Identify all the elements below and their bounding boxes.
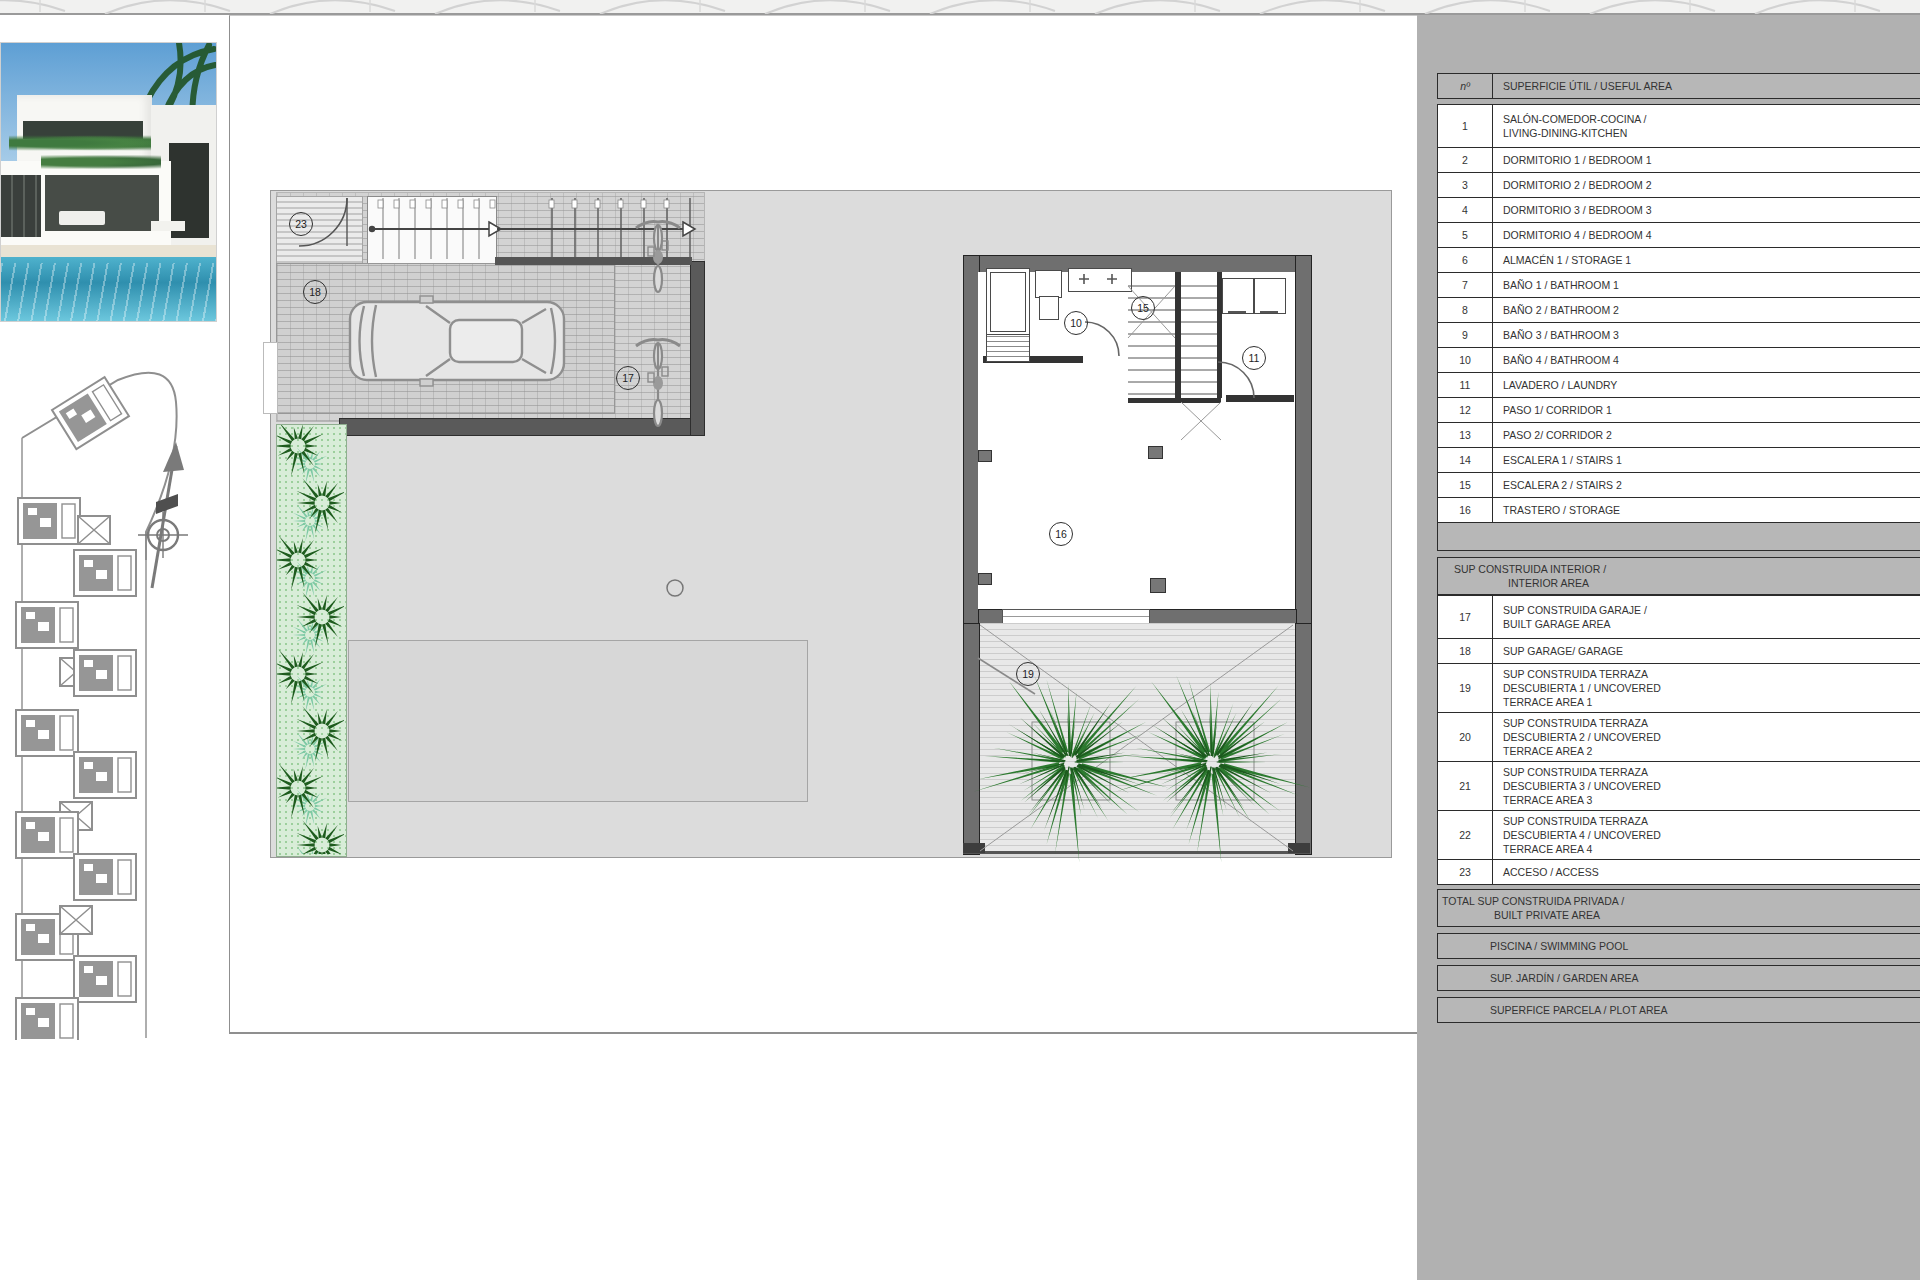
- row-name: SUP CONSTRUIDA TERRAZADESCUBIERTA 3 / UN…: [1493, 762, 1920, 810]
- villa-footprint: [16, 998, 78, 1040]
- villa-footprint: [16, 602, 78, 648]
- garage-side-gutter: [263, 342, 278, 414]
- row-number: 17: [1438, 596, 1493, 638]
- areas-table-block: 17 SUP CONSTRUIDA GARAJE /BUILT GARAGE A…: [1437, 595, 1920, 885]
- table-row: 19 SUP CONSTRUIDA TERRAZADESCUBIERTA 1 /…: [1438, 663, 1920, 712]
- photo-planter: [41, 155, 161, 169]
- access-ramp-hatch: [276, 196, 363, 264]
- stair-bottom-wall: [1128, 398, 1221, 403]
- table-header-row: nº SUPERFICIE ÚTIL / USEFUL AREA: [1437, 73, 1920, 99]
- room-label: 11: [1242, 346, 1266, 370]
- table-row: 23 ACCESO / ACCESS: [1438, 859, 1920, 884]
- table-row: 9 BAÑO 3 / BATHROOM 3: [1438, 322, 1920, 347]
- row-name: LAVADERO / LAUNDRY: [1493, 373, 1920, 397]
- row-number: 15: [1438, 473, 1493, 497]
- row-name: SALÓN-COMEDOR-COCINA /LIVING-DINING-KITC…: [1493, 105, 1920, 147]
- total-built-row: TOTAL SUP CONSTRUIDA PRIVADA /BUILT PRIV…: [1437, 889, 1920, 927]
- table-row: 12 PASO 1/ CORRIDOR 1: [1438, 397, 1920, 422]
- table-row: 14 ESCALERA 1 / STAIRS 1: [1438, 447, 1920, 472]
- row-number: 10: [1438, 348, 1493, 372]
- row-number: 1: [1438, 105, 1493, 147]
- shower-inner: [990, 272, 1026, 332]
- table-spacer-band: [1437, 523, 1920, 551]
- row-number: 21: [1438, 762, 1493, 810]
- terrace-corner-nub: [1288, 843, 1310, 853]
- row-number: 23: [1438, 860, 1493, 884]
- room-label: 19: [1016, 662, 1040, 686]
- row-name: DORMITORIO 3 / BEDROOM 3: [1493, 198, 1920, 222]
- table-row: 11 LAVADERO / LAUNDRY: [1438, 372, 1920, 397]
- row-number: 18: [1438, 639, 1493, 663]
- table-row: 7 BAÑO 1 / BATHROOM 1: [1438, 272, 1920, 297]
- pool-row: PISCINA / SWIMMING POOL: [1437, 933, 1920, 959]
- row-name: ESCALERA 1 / STAIRS 1: [1493, 448, 1920, 472]
- legend-panel: nº SUPERFICIE ÚTIL / USEFUL AREA 1 SALÓN…: [1417, 0, 1920, 1280]
- vanity-counter: [1068, 268, 1132, 292]
- stair-mid-wall: [1175, 272, 1181, 402]
- villa-footprint: [74, 550, 136, 596]
- row-name: BAÑO 1 / BATHROOM 1: [1493, 273, 1920, 297]
- table-header-num: nº: [1438, 74, 1493, 98]
- villa-photo: [0, 42, 217, 322]
- villa-footprint: [74, 956, 136, 1002]
- site-boundary: [22, 373, 177, 560]
- row-number: 9: [1438, 323, 1493, 347]
- villa-footprint: [74, 752, 136, 798]
- toilet-bowl: [1039, 296, 1059, 320]
- sheet-top-strip: [0, 0, 1920, 15]
- plot-row: SUPERFICE PARCELA / PLOT AREA: [1437, 997, 1920, 1023]
- row-name: BAÑO 3 / BATHROOM 3: [1493, 323, 1920, 347]
- row-number: 22: [1438, 811, 1493, 859]
- table-row: 3 DORMITORIO 2 / BEDROOM 2: [1438, 172, 1920, 197]
- column-marker: [1150, 578, 1166, 593]
- row-number: 3: [1438, 173, 1493, 197]
- row-name: PASO 2/ CORRIDOR 2: [1493, 423, 1920, 447]
- row-number: 11: [1438, 373, 1493, 397]
- pool-footprint: [78, 516, 110, 544]
- table-row: 2 DORMITORIO 1 / BEDROOM 1: [1438, 147, 1920, 172]
- room-label: 16: [1049, 522, 1073, 546]
- stair-run-outdoor: [367, 196, 497, 264]
- photo-terrace-plants: [9, 135, 159, 151]
- toilet-cistern: [1035, 270, 1062, 298]
- row-number: 7: [1438, 273, 1493, 297]
- sunken-patio: [348, 640, 808, 802]
- row-name: BAÑO 2 / BATHROOM 2: [1493, 298, 1920, 322]
- room-label: 17: [616, 366, 640, 390]
- villa-footprint: [52, 377, 129, 449]
- table-row: 4 DORMITORIO 3 / BEDROOM 3: [1438, 197, 1920, 222]
- terrace-edge: [963, 851, 1310, 854]
- column-marker: [1148, 446, 1163, 459]
- garage-slab: [276, 263, 615, 414]
- north-arrow-icon: [138, 442, 188, 588]
- terrace-wall-left: [963, 623, 980, 855]
- pool-footprint: [60, 658, 92, 686]
- row-number: 4: [1438, 198, 1493, 222]
- villa-footprint: [74, 854, 136, 900]
- built-area-section-header: SUP CONSTRUIDA INTERIOR /INTERIOR AREA: [1437, 557, 1920, 595]
- room-label: 23: [289, 212, 313, 236]
- row-name: SUP CONSTRUIDA TERRAZADESCUBIERTA 4 / UN…: [1493, 811, 1920, 859]
- table-row: 5 DORMITORIO 4 / BEDROOM 4: [1438, 222, 1920, 247]
- table-row: 6 ALMACÉN 1 / STORAGE 1: [1438, 247, 1920, 272]
- row-number: 16: [1438, 498, 1493, 522]
- table-header-title: SUPERFICIE ÚTIL / USEFUL AREA: [1493, 77, 1920, 95]
- table-row: 21 SUP CONSTRUIDA TERRAZADESCUBIERTA 3 /…: [1438, 761, 1920, 810]
- laundry-partition-wall: [1226, 395, 1294, 402]
- site-plan: [0, 350, 228, 1040]
- garden-row: SUP. JARDÍN / GARDEN AREA: [1437, 965, 1920, 991]
- hedge-strip: [276, 424, 347, 857]
- row-number: 20: [1438, 713, 1493, 761]
- row-name: SUP CONSTRUIDA TERRAZADESCUBIERTA 1 / UN…: [1493, 664, 1920, 712]
- row-name: SUP GARAGE/ GARAGE: [1493, 639, 1920, 663]
- row-number: 6: [1438, 248, 1493, 272]
- row-number: 2: [1438, 148, 1493, 172]
- table-row: 10 BAÑO 4 / BATHROOM 4: [1438, 347, 1920, 372]
- row-name: TRASTERO / STORAGE: [1493, 498, 1920, 522]
- row-number: 13: [1438, 423, 1493, 447]
- dryer-unit: [1254, 278, 1286, 314]
- table-row: 13 PASO 2/ CORRIDOR 2: [1438, 422, 1920, 447]
- row-number: 5: [1438, 223, 1493, 247]
- photo-glass-wall: [1, 175, 41, 237]
- retaining-wall-horizontal: [339, 418, 705, 436]
- villa-footprint: [16, 710, 78, 756]
- photo-sunbed: [151, 221, 185, 231]
- row-name: DORMITORIO 4 / BEDROOM 4: [1493, 223, 1920, 247]
- row-number: 8: [1438, 298, 1493, 322]
- area-table: nº SUPERFICIE ÚTIL / USEFUL AREA 1 SALÓN…: [1437, 73, 1920, 1023]
- building-wall-right: [1295, 255, 1312, 625]
- row-name: SUP CONSTRUIDA GARAJE /BUILT GARAGE AREA: [1493, 596, 1920, 638]
- row-name: PASO 1/ CORRIDOR 1: [1493, 398, 1920, 422]
- row-name: DORMITORIO 1 / BEDROOM 1: [1493, 148, 1920, 172]
- terrace-wall-right: [1295, 623, 1312, 855]
- pool-footprint: [60, 802, 92, 830]
- row-name: ACCESO / ACCESS: [1493, 860, 1920, 884]
- wall-pilaster: [978, 573, 992, 585]
- shower-grate: [986, 334, 1030, 362]
- table-row: 16 TRASTERO / STORAGE: [1438, 497, 1920, 522]
- row-number: 14: [1438, 448, 1493, 472]
- table-row: 8 BAÑO 2 / BATHROOM 2: [1438, 297, 1920, 322]
- villa-footprint: [74, 650, 136, 696]
- table-row: 1 SALÓN-COMEDOR-COCINA /LIVING-DINING-KI…: [1438, 105, 1920, 147]
- row-name: SUP CONSTRUIDA TERRAZADESCUBIERTA 2 / UN…: [1493, 713, 1920, 761]
- room-label: 15: [1131, 296, 1155, 320]
- table-row: 20 SUP CONSTRUIDA TERRAZADESCUBIERTA 2 /…: [1438, 712, 1920, 761]
- row-name: BAÑO 4 / BATHROOM 4: [1493, 348, 1920, 372]
- row-number: 12: [1438, 398, 1493, 422]
- row-number: 19: [1438, 664, 1493, 712]
- pool-footprint: [60, 906, 92, 934]
- photo-pool-ripples: [1, 263, 216, 321]
- villa-footprint: [16, 812, 78, 858]
- retaining-wall-vertical: [690, 261, 705, 436]
- row-name: ESCALERA 2 / STAIRS 2: [1493, 473, 1920, 497]
- washer-unit: [1222, 278, 1254, 314]
- villa-footprint: [18, 498, 80, 544]
- room-label: 18: [303, 280, 327, 304]
- rooms-table-block: 1 SALÓN-COMEDOR-COCINA /LIVING-DINING-KI…: [1437, 104, 1920, 523]
- room-label: 10: [1064, 311, 1088, 335]
- table-row: 15 ESCALERA 2 / STAIRS 2: [1438, 472, 1920, 497]
- wall-pilaster: [978, 450, 992, 462]
- villa-footprint: [16, 914, 78, 960]
- row-name: ALMACÉN 1 / STORAGE 1: [1493, 248, 1920, 272]
- window-mullion: [1003, 616, 1149, 617]
- terrace-corner-nub: [963, 843, 985, 853]
- table-row: 18 SUP GARAGE/ GARAGE: [1438, 638, 1920, 663]
- terrace-deck: [978, 623, 1295, 851]
- table-row: 17 SUP CONSTRUIDA GARAJE /BUILT GARAGE A…: [1438, 596, 1920, 638]
- photo-lounge-sofa: [59, 211, 105, 225]
- table-row: 22 SUP CONSTRUIDA TERRAZADESCUBIERTA 4 /…: [1438, 810, 1920, 859]
- row-name: DORMITORIO 2 / BEDROOM 2: [1493, 173, 1920, 197]
